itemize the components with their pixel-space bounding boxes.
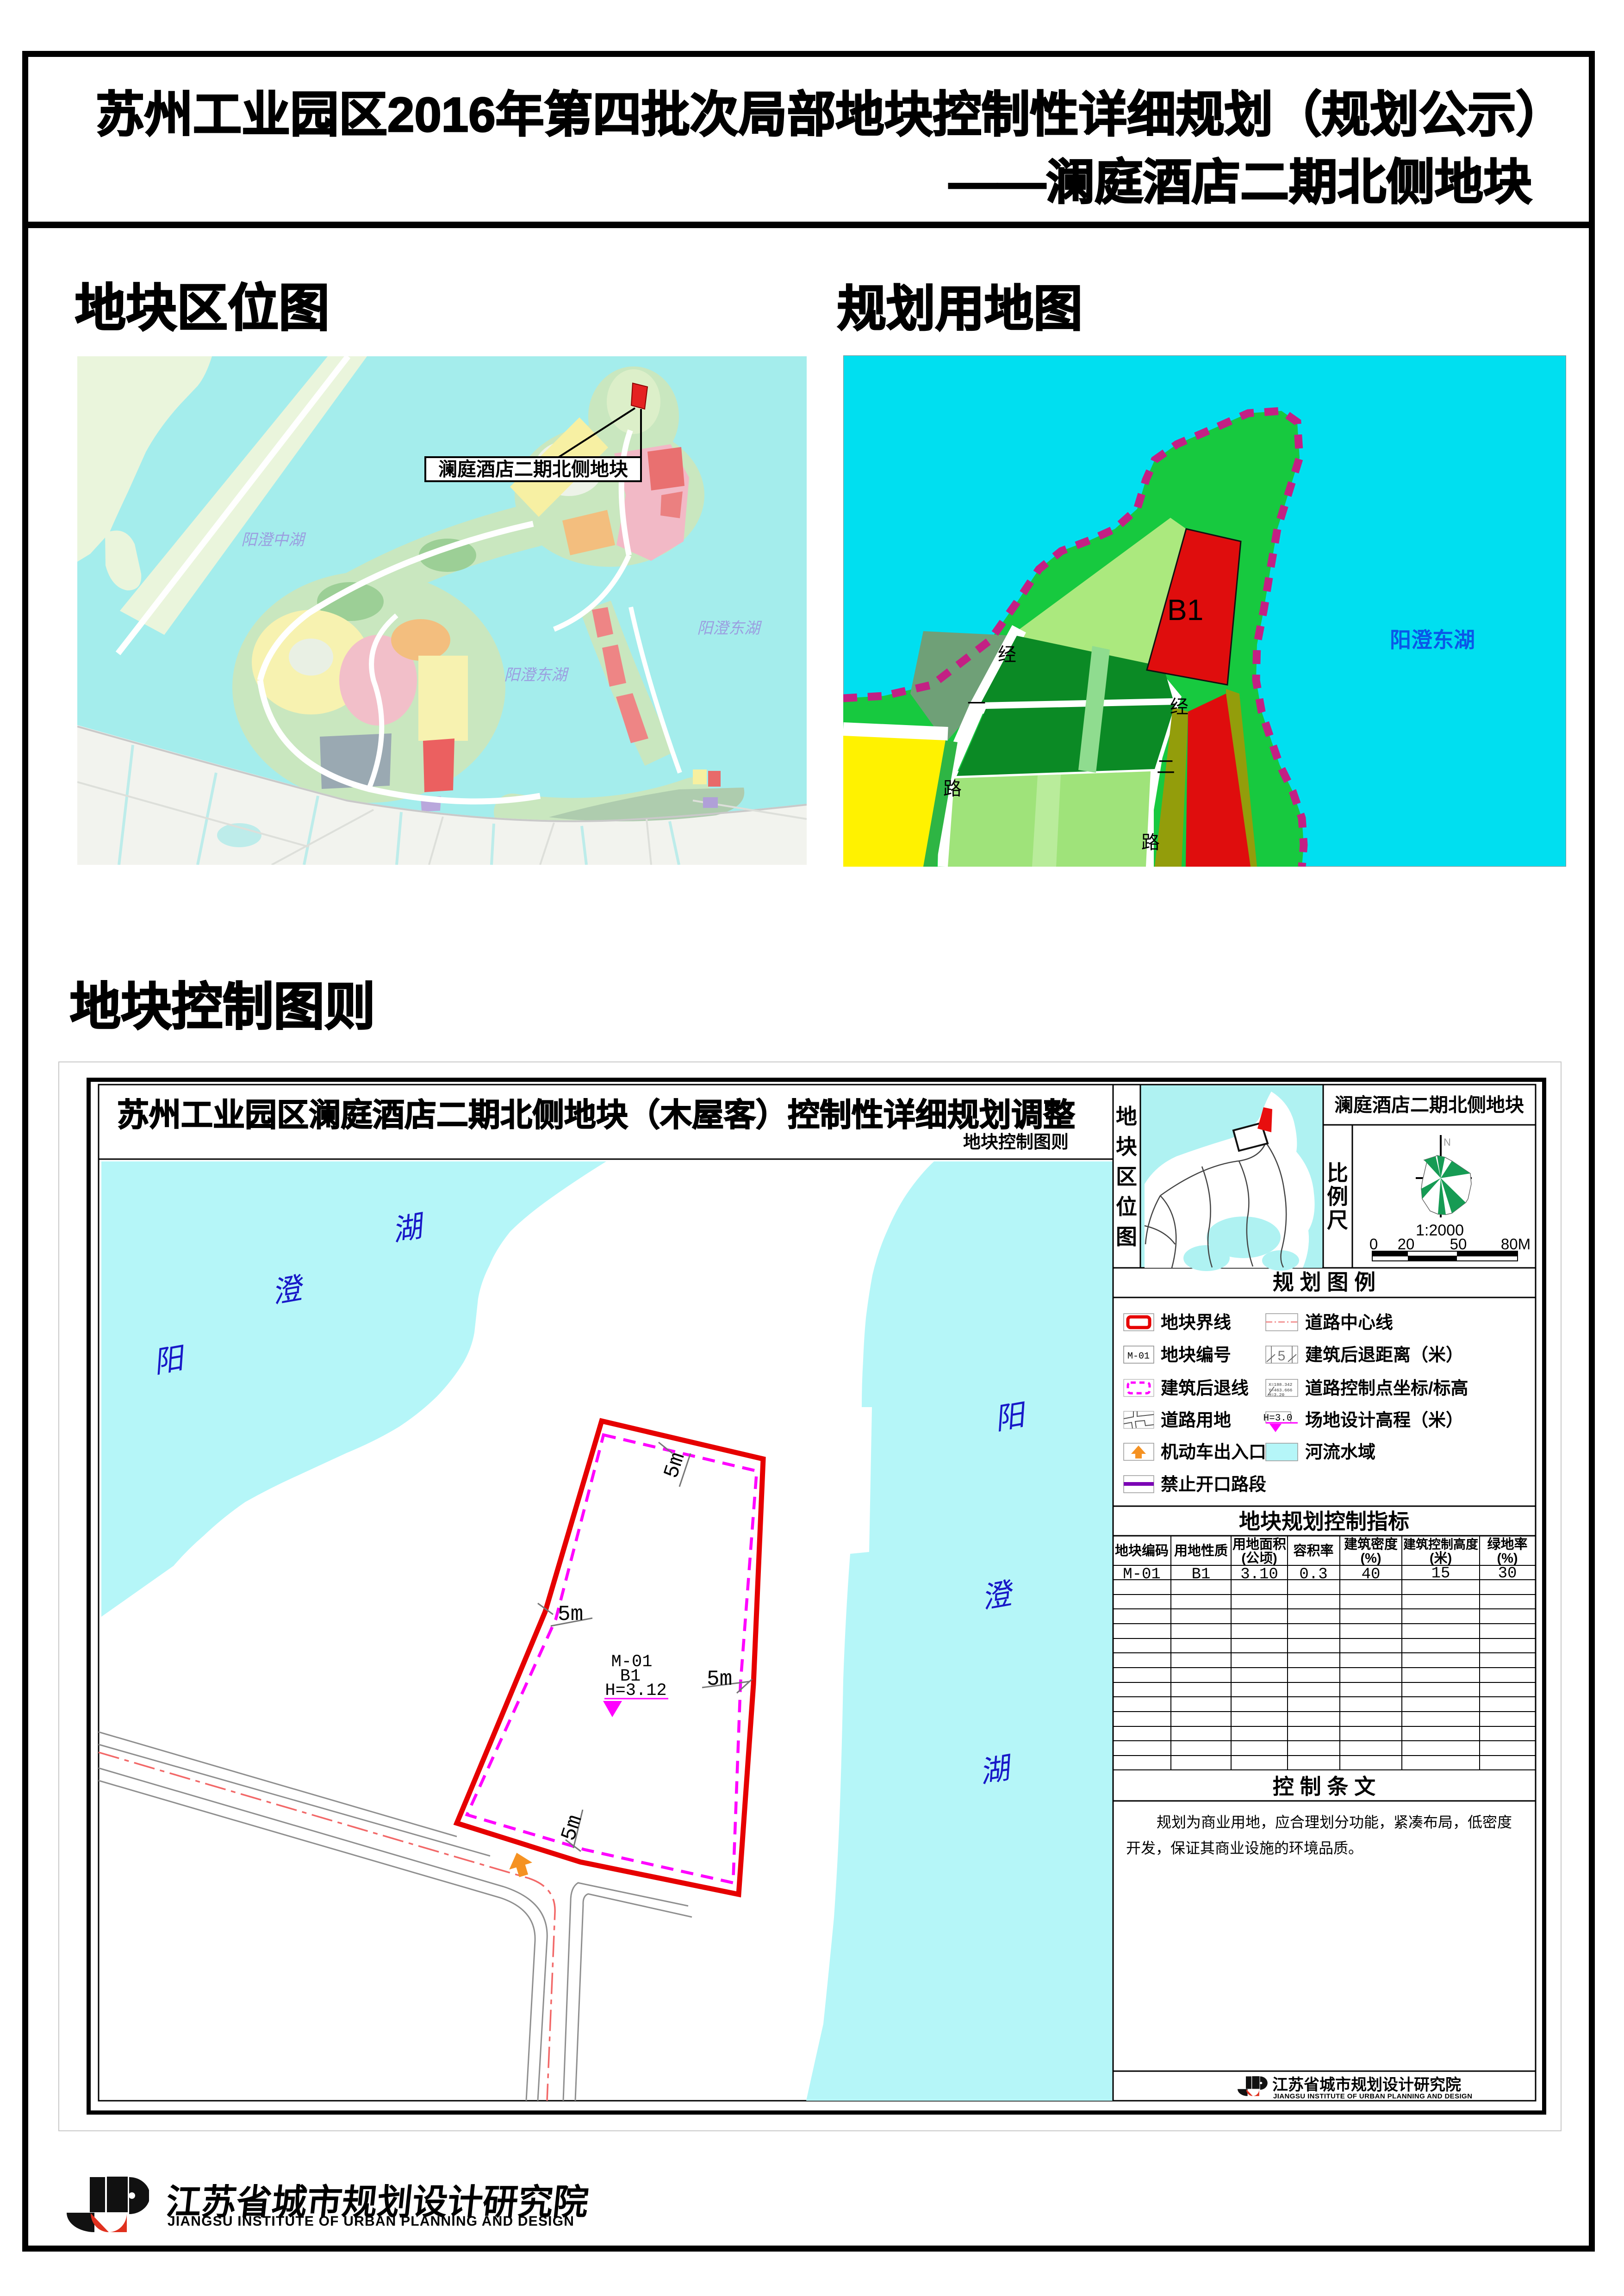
svg-text:江苏省城市规划设计研究院: 江苏省城市规划设计研究院	[1272, 2076, 1461, 2094]
svg-text:苏州工业园区澜庭酒店二期北侧地块（木屋客）控制性详细规划调整: 苏州工业园区澜庭酒店二期北侧地块（木屋客）控制性详细规划调整	[117, 1097, 1075, 1133]
svg-text:容积率: 容积率	[1293, 1543, 1333, 1558]
svg-text:经: 经	[1170, 697, 1188, 717]
svg-text:20: 20	[1398, 1235, 1415, 1253]
svg-text:建筑密度: 建筑密度	[1344, 1536, 1398, 1552]
svg-text:(公顷): (公顷)	[1241, 1551, 1277, 1566]
svg-text:澜庭酒店二期北侧地块: 澜庭酒店二期北侧地块	[1334, 1094, 1524, 1116]
svg-text:B1: B1	[1192, 1566, 1211, 1583]
svg-text:(%): (%)	[1360, 1551, 1381, 1566]
svg-text:机动车出入口: 机动车出入口	[1161, 1443, 1266, 1462]
svg-text:一: 一	[967, 694, 986, 714]
svg-text:80M: 80M	[1501, 1235, 1531, 1253]
svg-text:(米): (米)	[1430, 1551, 1452, 1566]
svg-text:JIANGSU INSTITUTE OF URBAN PLA: JIANGSU INSTITUTE OF URBAN PLANNING AND …	[1273, 2092, 1472, 2100]
svg-text:阳澄东湖: 阳澄东湖	[697, 620, 762, 637]
svg-text:场地设计高程（米）: 场地设计高程（米）	[1305, 1411, 1463, 1430]
svg-text:地块界线: 地块界线	[1161, 1313, 1231, 1333]
svg-text:30: 30	[1498, 1565, 1517, 1582]
svg-text:图: 图	[1116, 1225, 1137, 1249]
svg-text:建筑后退距离（米）: 建筑后退距离（米）	[1305, 1346, 1463, 1365]
svg-text:道路用地: 道路用地	[1161, 1411, 1231, 1430]
svg-text:(%): (%)	[1497, 1551, 1518, 1566]
svg-text:用地面积: 用地面积	[1232, 1537, 1286, 1552]
svg-text:区: 区	[1116, 1165, 1137, 1189]
svg-text:比: 比	[1327, 1161, 1348, 1185]
svg-text:道路中心线: 道路中心线	[1305, 1313, 1393, 1333]
svg-text:道路控制点坐标/标高: 道路控制点坐标/标高	[1305, 1379, 1468, 1398]
svg-text:阳澄东湖: 阳澄东湖	[1390, 628, 1475, 652]
svg-text:地块编号: 地块编号	[1161, 1346, 1231, 1365]
svg-text:阳澄东湖: 阳澄东湖	[504, 666, 569, 684]
svg-text:路: 路	[943, 779, 962, 799]
svg-text:40: 40	[1362, 1566, 1381, 1583]
svg-text:绿地率: 绿地率	[1487, 1536, 1527, 1552]
svg-text:50: 50	[1450, 1235, 1467, 1253]
svg-text:开发，保证其商业设施的环境品质。: 开发，保证其商业设施的环境品质。	[1126, 1840, 1363, 1856]
svg-text:5m: 5m	[558, 1602, 583, 1626]
svg-text:规划为商业用地，应合理划分功能，紧凑布局，低密度: 规划为商业用地，应合理划分功能，紧凑布局，低密度	[1157, 1814, 1512, 1831]
svg-text:建筑后退线: 建筑后退线	[1161, 1379, 1249, 1398]
svg-text:H=3.12: H=3.12	[605, 1681, 666, 1700]
svg-text:建筑控制高度: 建筑控制高度	[1403, 1537, 1478, 1551]
svg-text:块: 块	[1116, 1135, 1137, 1159]
svg-text:地块编码: 地块编码	[1115, 1543, 1169, 1558]
svg-text:禁止开口路段: 禁止开口路段	[1161, 1475, 1266, 1495]
svg-text:经: 经	[998, 645, 1016, 665]
svg-text:河流水域: 河流水域	[1305, 1443, 1375, 1462]
svg-text:位: 位	[1116, 1195, 1137, 1219]
svg-text:M-01: M-01	[1127, 1351, 1150, 1362]
svg-text:5m: 5m	[707, 1667, 732, 1691]
svg-text:M-01: M-01	[1123, 1566, 1161, 1583]
svg-text:0.3: 0.3	[1299, 1566, 1327, 1583]
svg-text:15: 15	[1431, 1565, 1450, 1582]
svg-text:路: 路	[1141, 832, 1160, 853]
svg-text:3.10: 3.10	[1240, 1566, 1278, 1583]
svg-text:B1: B1	[1167, 593, 1203, 627]
svg-text:N: N	[1444, 1136, 1451, 1148]
svg-text:0: 0	[1369, 1235, 1378, 1253]
svg-text:X=188.342: X=188.342	[1269, 1382, 1293, 1387]
svg-text:地块规划控制指标: 地块规划控制指标	[1239, 1509, 1409, 1533]
svg-text:规 划 图 例: 规 划 图 例	[1273, 1270, 1375, 1294]
svg-text:控 制 条 文: 控 制 条 文	[1273, 1775, 1375, 1799]
svg-text:地块控制图则: 地块控制图则	[963, 1133, 1069, 1152]
svg-text:二: 二	[1157, 757, 1175, 777]
svg-text:5: 5	[1278, 1348, 1286, 1364]
svg-text:阳澄中湖: 阳澄中湖	[241, 531, 306, 549]
svg-text:澜庭酒店二期北侧地块: 澜庭酒店二期北侧地块	[438, 459, 628, 480]
svg-text:尺: 尺	[1327, 1208, 1348, 1232]
svg-text:H=3.20: H=3.20	[1269, 1392, 1285, 1397]
svg-text:例: 例	[1327, 1185, 1348, 1209]
svg-text:用地性质: 用地性质	[1174, 1543, 1228, 1558]
svg-text:地: 地	[1116, 1105, 1137, 1129]
